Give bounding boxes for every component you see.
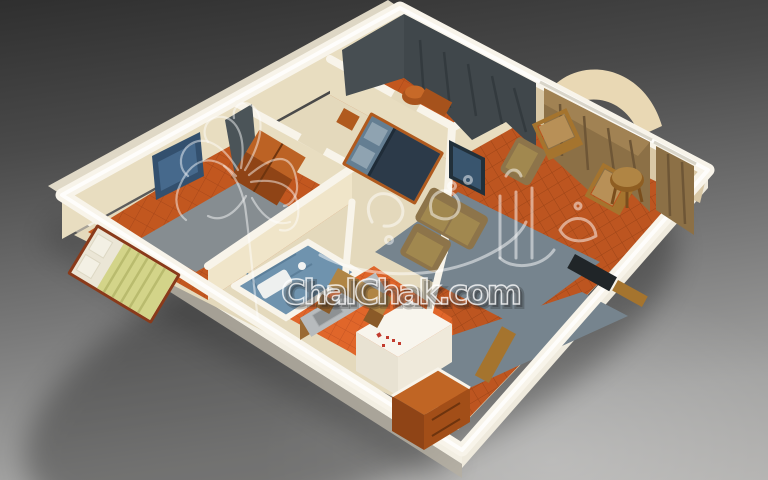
watermark-text: ChalChak.com: [281, 273, 523, 313]
floorplan-3d: ChalChak.com ChalChak.com: [0, 0, 768, 480]
render-canvas: ChalChak.com ChalChak.com: [0, 0, 768, 480]
